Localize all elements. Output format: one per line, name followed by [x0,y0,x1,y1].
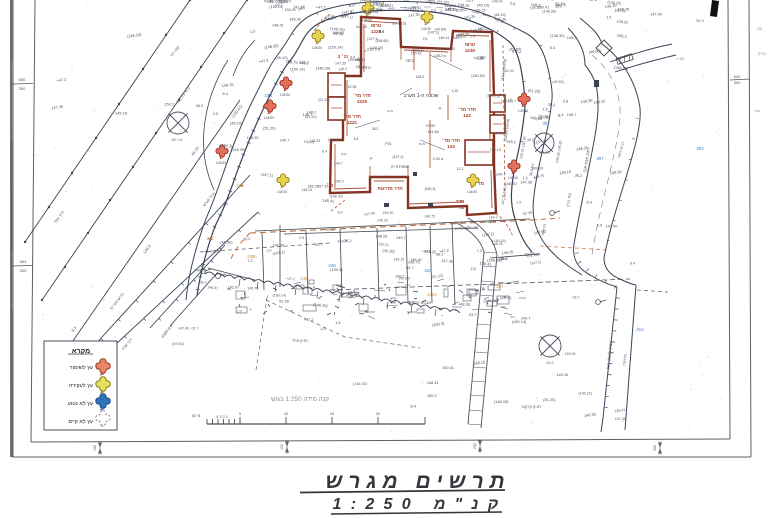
svg-text:מ.ע: מ.ע [387,109,393,113]
svg-text:148.25: 148.25 [458,2,470,8]
svg-text:149.15: 149.15 [393,257,404,261]
svg-text:148.41: 148.41 [486,220,497,224]
svg-text:150.2: 150.2 [427,393,437,398]
svg-text:146.30: 146.30 [368,8,379,12]
svg-text:+47.2: +47.2 [316,4,326,9]
svg-text:חדר מד׳: חדר מד׳ [442,137,460,143]
svg-text:146.30: 146.30 [289,17,302,22]
svg-text:(51.20): (51.20) [263,126,276,131]
svg-text:4 3 2 1: 4 3 2 1 [216,415,228,419]
svg-text:חניון עילי: חניון עילי [292,338,308,343]
svg-text:(147.1): (147.1) [428,31,439,35]
svg-text:1230: 1230 [465,48,476,53]
svg-text:5: 5 [239,412,241,416]
svg-text:148.41: 148.41 [438,36,449,40]
svg-text:147.35: 147.35 [615,417,626,421]
svg-text:1.5: 1.5 [542,106,547,111]
svg-text:2.0: 2.0 [431,8,437,13]
svg-text:(45.10): (45.10) [539,151,550,155]
svg-text:36.2: 36.2 [456,9,463,13]
svg-text:250: 250 [473,443,477,449]
svg-text:(148.30): (148.30) [316,66,331,71]
svg-text:10: 10 [284,412,288,416]
svg-text:43.2: 43.2 [547,361,554,365]
svg-text:149.15: 149.15 [556,372,568,377]
svg-text:+0.00: +0.00 [425,124,435,128]
svg-text:148.41: 148.41 [492,0,503,4]
svg-text:(148.30): (148.30) [231,147,246,152]
svg-text:(51.20): (51.20) [305,115,316,119]
svg-text:(49.50): (49.50) [509,46,522,51]
svg-text:חדר מד׳: חדר מד׳ [343,113,361,119]
svg-text:+47.2: +47.2 [286,277,295,282]
svg-text:148.50: 148.50 [518,109,528,113]
svg-text:146.30: 146.30 [456,35,467,39]
svg-text:148.50: 148.50 [280,93,290,97]
svg-text:כניסה: כניסה [405,59,414,63]
svg-text:03.7: 03.7 [191,327,198,331]
svg-text:טרפו: טרפו [371,23,381,28]
svg-text:36.2: 36.2 [196,103,204,108]
svg-text:148.50: 148.50 [277,190,287,194]
svg-text:8.4: 8.4 [550,45,556,50]
svg-text:(45.10): (45.10) [230,120,243,125]
svg-text:חניון קרקעי: חניון קרקעי [521,404,541,409]
svg-text:36.2: 36.2 [574,173,582,179]
svg-text:150.41: 150.41 [411,51,422,55]
svg-text:247: 247 [497,284,505,289]
svg-text:36.2: 36.2 [555,4,562,8]
svg-text:2.0: 2.0 [236,309,242,314]
svg-text:300: 300 [20,268,27,273]
svg-text:146.75: 146.75 [286,59,298,65]
svg-text:239: 239 [237,183,245,188]
svg-text:(146.15): (146.15) [494,399,509,404]
svg-text:(146.15): (146.15) [578,391,591,395]
svg-text:(51.20): (51.20) [378,4,389,8]
svg-text:148.25: 148.25 [194,269,205,273]
svg-text:1.5: 1.5 [335,320,340,325]
svg-text:(147.1): (147.1) [404,6,415,10]
svg-text:148.25: 148.25 [375,234,387,239]
svg-text:149.7: 149.7 [496,171,506,176]
svg-text:2.0: 2.0 [404,0,409,2]
svg-text:(45.10): (45.10) [494,13,506,17]
svg-text:307: 307 [596,156,604,161]
svg-text:54.3: 54.3 [696,19,703,23]
svg-text:כנ׳ 2: כנ׳ 2 [338,53,349,59]
svg-text:36.2: 36.2 [199,280,206,285]
svg-text:(147.1): (147.1) [367,37,378,41]
svg-text:147.90: 147.90 [178,326,189,330]
svg-text:חדר: חדר [456,199,465,204]
svg-text:1.5: 1.5 [250,28,256,34]
svg-text:20: 20 [376,412,380,416]
svg-text:246A: 246A [427,292,437,297]
svg-text:(146.15): (146.15) [455,226,468,230]
svg-text:(148.30): (148.30) [370,46,383,50]
svg-text:(150.14): (150.14) [269,5,283,9]
svg-text:246: 246 [301,276,309,281]
svg-text:(150.14): (150.14) [290,67,305,72]
svg-text:1220: 1220 [357,99,368,104]
svg-text:148.25: 148.25 [301,188,312,192]
svg-text:242: 242 [207,236,215,241]
svg-text:149.7: 149.7 [507,99,516,103]
svg-text:147.90: 147.90 [650,11,663,16]
svg-text:149.30: 149.30 [327,138,338,142]
svg-text:640: 640 [734,74,741,79]
svg-text:2.0: 2.0 [470,34,475,38]
svg-text:(49.50): (49.50) [348,291,359,295]
svg-text:149.7: 149.7 [280,138,290,143]
svg-text:(49.50): (49.50) [552,80,563,84]
svg-text:122: 122 [463,113,471,118]
svg-text:149.15: 149.15 [267,0,278,4]
svg-text:1221: 1221 [347,120,358,125]
svg-text:147.90: 147.90 [444,47,455,51]
svg-text:(150.14): (150.14) [512,319,527,324]
svg-text:52.39: 52.39 [278,0,287,3]
svg-text:307: 307 [543,121,551,126]
svg-text:(148.30): (148.30) [550,33,565,38]
svg-text:קנ"מ 1:250: קנ"מ 1:250 [333,496,508,513]
svg-text:12.39: 12.39 [348,85,357,89]
svg-text:(150.3): (150.3) [425,187,436,191]
svg-text:318: 318 [424,268,432,273]
svg-text:148.50: 148.50 [362,18,372,22]
svg-text:300: 300 [653,445,657,451]
svg-text:146.75: 146.75 [247,286,258,290]
svg-text:(45.10): (45.10) [477,3,490,8]
svg-text:314: 314 [636,327,644,332]
svg-text:146.30: 146.30 [377,218,388,222]
svg-text:148.41: 148.41 [427,380,439,385]
svg-text:ק.ק: ק.ק [342,152,347,156]
svg-text:149.30: 149.30 [382,211,393,215]
svg-text:1.5: 1.5 [247,259,252,263]
svg-text:+: + [370,156,373,162]
svg-text:(147.1): (147.1) [392,155,403,159]
svg-text:147.35: 147.35 [441,258,453,264]
svg-text:149.7: 149.7 [567,35,577,40]
svg-text:52.39: 52.39 [279,298,289,303]
svg-text:עץ לא נטוע: עץ לא נטוע [68,400,93,407]
svg-text:8.4: 8.4 [354,137,359,141]
svg-text:עץ לעקירה: עץ לעקירה [69,382,93,389]
svg-text:1.5: 1.5 [606,15,611,19]
svg-text:03.7: 03.7 [573,296,580,300]
svg-text:(148.30): (148.30) [542,10,556,14]
svg-text:03.7: 03.7 [469,312,477,317]
svg-text:עץ לשימור: עץ לשימור [70,364,93,371]
svg-text:+: + [439,106,442,112]
svg-text:2.0: 2.0 [266,249,272,254]
svg-text:8.4: 8.4 [410,403,416,408]
svg-text:03.7: 03.7 [315,242,323,247]
svg-text:148.2: 148.2 [416,75,425,79]
svg-text:03.7: 03.7 [406,265,414,270]
svg-text:8.4: 8.4 [630,262,635,266]
svg-text:148.50: 148.50 [264,116,274,120]
svg-text:+47.2: +47.2 [304,317,314,322]
svg-text:(148.30): (148.30) [353,382,368,386]
svg-text:(150.14): (150.14) [328,44,343,49]
svg-text:148.50: 148.50 [508,176,518,180]
svg-text:1.20: 1.20 [452,89,459,93]
svg-text:חדר מד׳: חדר מד׳ [353,92,371,98]
svg-text:146.75: 146.75 [424,215,435,219]
svg-text:650: 650 [19,77,26,82]
svg-text:300: 300 [19,86,26,91]
svg-text:1.5: 1.5 [477,249,482,253]
svg-text:148.25: 148.25 [355,25,366,29]
svg-text:(146.15): (146.15) [392,21,406,25]
svg-text:2.0: 2.0 [597,222,603,227]
svg-text:148.2 מ: 148.2 מ [434,54,447,58]
svg-text:147.35: 147.35 [335,61,346,65]
svg-text:150.41: 150.41 [442,365,454,370]
svg-text:52.39: 52.39 [538,113,548,119]
svg-text:146.30: 146.30 [247,135,260,140]
svg-text:654: 654 [20,259,27,264]
svg-text:15: 15 [330,412,334,416]
svg-text:52.39: 52.39 [326,228,335,232]
svg-text:150: 150 [93,445,97,451]
svg-text:148.2: 148.2 [425,0,434,4]
svg-text:מ' 50: מ' 50 [192,414,201,418]
svg-text:(49.50): (49.50) [399,276,410,280]
svg-text:8.4: 8.4 [338,210,343,214]
svg-text:8.4: 8.4 [223,91,229,96]
svg-text:300: 300 [734,80,741,85]
svg-text:חדר מדרגות: חדר מדרגות [377,186,402,191]
svg-text:2.0: 2.0 [379,30,384,34]
svg-text:05.: 05. [757,26,763,31]
svg-text:147.35: 147.35 [520,179,532,184]
svg-text:12.2: 12.2 [457,167,464,171]
svg-text:36.2: 36.2 [372,127,379,131]
svg-text:304: 304 [696,146,704,151]
svg-text:147.35: 147.35 [317,184,328,188]
svg-text:בניין: בניין [385,142,392,146]
svg-text:קומות 9+ק: קומות 9+ק [391,164,410,169]
svg-text:36.2: 36.2 [548,102,556,108]
svg-text:(45.10): (45.10) [500,296,511,300]
svg-text:150.2: 150.2 [617,33,627,39]
svg-text:(148.30): (148.30) [329,195,342,199]
svg-text:(49.50): (49.50) [220,239,233,244]
svg-text:123: 123 [447,144,455,149]
svg-text:146.2: 146.2 [299,59,309,65]
svg-text:+ 22: + 22 [676,57,684,61]
svg-text:149.15: 149.15 [490,148,501,152]
svg-text:(51.20): (51.20) [543,397,556,402]
svg-text:150.41: 150.41 [285,8,296,12]
svg-text:147.90: 147.90 [605,224,618,229]
svg-text:148.50: 148.50 [467,190,477,194]
svg-text:151.60: 151.60 [427,130,439,134]
svg-text:148.41: 148.41 [354,58,365,62]
svg-text:1.5: 1.5 [320,326,325,331]
svg-text:שכונה ה-1 מערב: שכונה ה-1 מערב [404,93,439,99]
svg-text:1.5: 1.5 [516,200,521,204]
svg-text:טרפו: טרפו [465,42,475,47]
svg-text:(150.3): (150.3) [330,267,343,272]
svg-text:מד׳: מד׳ [456,204,464,210]
svg-text:2.5: 2.5 [423,37,428,41]
svg-text:(150.14): (150.14) [273,293,286,297]
svg-text:מ 0.25: מ 0.25 [433,157,444,161]
svg-text:36.2: 36.2 [500,257,507,261]
svg-text:מ.מ: מ.מ [419,142,425,146]
svg-text:150.2: 150.2 [335,180,344,184]
svg-text:(146.15): (146.15) [484,298,499,303]
svg-text:149.7: 149.7 [567,112,577,117]
svg-text:+47.2: +47.2 [422,250,431,254]
svg-text:(49.50): (49.50) [172,342,185,346]
svg-text:148.41: 148.41 [332,30,344,35]
svg-text:(51.20): (51.20) [318,98,329,102]
svg-text:148.50: 148.50 [216,161,226,165]
svg-text:149.7: 149.7 [396,235,406,240]
svg-text:8.4: 8.4 [322,150,327,154]
svg-text:עץ לא קיים: עץ לא קיים [68,418,93,425]
svg-text:מצר: מצר [754,109,761,113]
svg-text:(146.15): (146.15) [492,239,505,243]
svg-text:149.30: 149.30 [531,166,544,171]
svg-text:149.30: 149.30 [210,249,221,253]
svg-text:150.2: 150.2 [164,101,174,106]
svg-text:147.35: 147.35 [272,243,284,248]
svg-text:149.15: 149.15 [474,9,485,13]
svg-text:149.15: 149.15 [115,110,127,115]
svg-text:36.2: 36.2 [344,238,352,244]
svg-text:200: 200 [280,444,284,450]
svg-text:146.75: 146.75 [408,260,420,265]
svg-text:בנ"ק: בנ"ק [758,51,766,56]
svg-text:148.50: 148.50 [312,46,322,50]
svg-text:קנה מידה 1:250 בגוש: קנה מידה 1:250 בגוש [271,396,329,403]
svg-text:2.0: 2.0 [299,235,305,240]
svg-text:2.0: 2.0 [213,111,219,116]
svg-text:248: 248 [264,93,272,98]
svg-text:(150.30): (150.30) [471,74,484,78]
svg-text:149.30: 149.30 [564,352,575,356]
svg-text:149.30: 149.30 [360,0,371,3]
svg-text:05 מ"ר: 05 מ"ר [172,138,183,142]
svg-text:מבנים קיימים: מבנים קיימים [409,300,432,305]
svg-text:+47.2: +47.2 [587,0,597,2]
svg-text:148.25: 148.25 [272,24,283,28]
svg-text:149.7: 149.7 [334,162,343,166]
svg-text:חדר מד׳: חדר מד׳ [458,106,476,112]
svg-text:146.30: 146.30 [227,285,238,289]
